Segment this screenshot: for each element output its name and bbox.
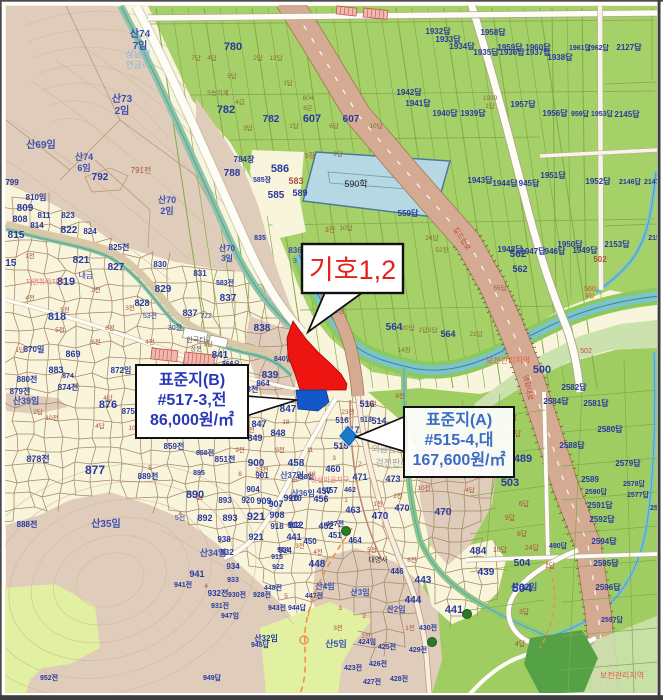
svg-text:4답: 4답 <box>103 394 113 402</box>
svg-text:첫샘마을지구: 첫샘마을지구 <box>311 475 350 484</box>
svg-text:내금: 내금 <box>79 271 94 280</box>
svg-text:1답: 1답 <box>15 346 25 354</box>
svg-text:2전: 2전 <box>91 285 101 294</box>
svg-text:2145답: 2145답 <box>614 109 640 119</box>
svg-text:4급: 4급 <box>235 98 245 106</box>
svg-text:2584답: 2584답 <box>543 396 569 406</box>
svg-text:799: 799 <box>5 178 19 187</box>
svg-text:892: 892 <box>197 513 212 523</box>
svg-text:6전: 6전 <box>407 555 417 564</box>
svg-text:934: 934 <box>226 562 240 571</box>
svg-text:518: 518 <box>360 417 372 424</box>
svg-text:922: 922 <box>272 564 284 571</box>
svg-text:24답: 24답 <box>425 234 438 242</box>
svg-text:연금리: 연금리 <box>126 60 151 70</box>
svg-text:809: 809 <box>17 203 34 214</box>
svg-text:4답: 4답 <box>586 293 595 300</box>
svg-text:945답: 945답 <box>519 178 540 188</box>
svg-text:457: 457 <box>316 486 331 496</box>
svg-text:607: 607 <box>343 114 360 125</box>
svg-text:825전: 825전 <box>109 242 130 252</box>
svg-text:874: 874 <box>62 373 74 380</box>
svg-text:4전: 4전 <box>25 293 35 302</box>
svg-text:448: 448 <box>309 559 326 570</box>
svg-text:893: 893 <box>218 496 232 505</box>
svg-text:446: 446 <box>390 567 404 576</box>
svg-text:9답: 9답 <box>333 150 343 158</box>
svg-text:1943답: 1943답 <box>467 175 493 185</box>
svg-text:2153답: 2153답 <box>604 239 630 249</box>
svg-text:1: 1 <box>388 605 392 612</box>
svg-text:52장: 52장 <box>435 245 448 254</box>
svg-text:815: 815 <box>8 230 25 241</box>
svg-text:930전: 930전 <box>228 590 246 599</box>
svg-text:1답: 1답 <box>203 340 213 348</box>
svg-text:2: 2 <box>362 613 366 620</box>
svg-text:451: 451 <box>328 531 342 540</box>
svg-text:1952답: 1952답 <box>585 176 611 186</box>
svg-text:460: 460 <box>325 464 340 474</box>
svg-text:824: 824 <box>83 227 97 236</box>
svg-text:1949답: 1949답 <box>572 245 598 255</box>
svg-text:441: 441 <box>286 532 301 542</box>
svg-text:2582답: 2582답 <box>561 382 587 392</box>
svg-text:839: 839 <box>262 370 279 381</box>
svg-text:1956답: 1956답 <box>542 108 568 118</box>
svg-text:504: 504 <box>514 558 531 569</box>
svg-text:8전: 8전 <box>395 391 405 400</box>
svg-text:878전: 878전 <box>26 453 49 464</box>
svg-text:851전: 851전 <box>215 454 236 464</box>
svg-text:959답: 959답 <box>571 109 590 118</box>
svg-text:2594답: 2594답 <box>591 536 617 546</box>
svg-text:904: 904 <box>246 485 260 494</box>
svg-text:2592답: 2592답 <box>589 514 615 524</box>
svg-text:기호1,2: 기호1,2 <box>309 255 396 285</box>
svg-text:829: 829 <box>155 284 172 295</box>
svg-text:1953답: 1953답 <box>591 109 614 118</box>
svg-text:918: 918 <box>270 522 284 531</box>
svg-text:443: 443 <box>415 575 432 586</box>
svg-text:502: 502 <box>593 255 607 264</box>
svg-text:산32임: 산32임 <box>254 633 278 643</box>
svg-text:426전: 426전 <box>369 659 387 668</box>
svg-text:7답: 7답 <box>191 54 201 62</box>
svg-text:3전: 3전 <box>295 541 305 550</box>
svg-text:859전: 859전 <box>164 441 185 451</box>
svg-text:1939: 1939 <box>483 95 498 102</box>
svg-text:849: 849 <box>247 433 262 443</box>
svg-text:5: 5 <box>284 593 288 600</box>
svg-text:427전: 427전 <box>363 677 381 686</box>
svg-text:430전: 430전 <box>419 623 437 632</box>
svg-text:888전: 888전 <box>17 519 38 529</box>
svg-text:784장: 784장 <box>234 154 255 164</box>
svg-text:814: 814 <box>30 221 44 230</box>
svg-text:831: 831 <box>193 269 207 278</box>
svg-text:880전: 880전 <box>17 374 38 384</box>
svg-text:9전: 9전 <box>275 445 285 454</box>
svg-text:933: 933 <box>227 577 239 584</box>
svg-text:3전: 3전 <box>325 225 335 234</box>
svg-text:1957답: 1957답 <box>510 99 536 109</box>
svg-text:30장: 30장 <box>168 323 183 332</box>
svg-text:564: 564 <box>386 322 403 333</box>
svg-text:473: 473 <box>385 474 400 484</box>
svg-text:848: 848 <box>270 428 285 438</box>
svg-text:562: 562 <box>510 249 527 260</box>
svg-text:470: 470 <box>394 503 409 513</box>
svg-text:5전: 5전 <box>55 325 65 334</box>
svg-text:53전: 53전 <box>143 311 157 320</box>
svg-text:4답: 4답 <box>515 639 526 648</box>
svg-text:2전: 2전 <box>361 631 371 640</box>
svg-text:3전: 3전 <box>125 303 135 312</box>
svg-text:877: 877 <box>85 463 105 477</box>
svg-text:자연취락지구: 자연취락지구 <box>26 277 65 286</box>
svg-text:대영사: 대영사 <box>368 555 388 564</box>
svg-text:2581답: 2581답 <box>583 398 609 408</box>
svg-text:810임: 810임 <box>26 192 47 202</box>
svg-text:921: 921 <box>248 532 263 542</box>
svg-text:1전: 1전 <box>25 251 35 260</box>
svg-text:590학: 590학 <box>344 179 367 189</box>
svg-text:920: 920 <box>241 496 255 505</box>
svg-text:489: 489 <box>514 453 532 465</box>
svg-text:870일: 870일 <box>24 344 45 354</box>
svg-text:21답: 21답 <box>469 330 482 338</box>
svg-text:823: 823 <box>61 211 75 220</box>
svg-text:4답: 4답 <box>207 54 217 62</box>
svg-text:2임: 2임 <box>160 205 173 216</box>
svg-text:874전: 874전 <box>58 382 79 392</box>
svg-text:470: 470 <box>372 511 389 522</box>
svg-text:산73: 산73 <box>112 92 133 105</box>
svg-text:837: 837 <box>220 293 237 304</box>
svg-text:1: 1 <box>344 497 348 504</box>
svg-text:2전: 2전 <box>393 491 403 500</box>
svg-text:산74: 산74 <box>75 151 93 162</box>
svg-text:3전: 3전 <box>333 623 343 632</box>
svg-text:893: 893 <box>222 513 237 523</box>
svg-text:1942답: 1942답 <box>396 87 422 97</box>
svg-text:23전: 23전 <box>341 407 354 416</box>
svg-text:560: 560 <box>584 286 596 293</box>
svg-text:503: 503 <box>501 477 519 489</box>
svg-text:6전: 6전 <box>105 323 115 332</box>
svg-text:10답: 10답 <box>493 545 508 554</box>
svg-text:상문: 상문 <box>190 345 202 353</box>
svg-text:표준지(A): 표준지(A) <box>426 411 492 429</box>
svg-text:471: 471 <box>352 472 367 482</box>
svg-text:20답: 20답 <box>401 324 414 332</box>
svg-text:1답: 1답 <box>485 102 495 110</box>
svg-text:780: 780 <box>224 41 242 53</box>
svg-text:2146답: 2146답 <box>619 177 642 186</box>
svg-text:490답: 490답 <box>549 541 568 550</box>
svg-text:1답: 1답 <box>545 561 556 570</box>
svg-text:462: 462 <box>344 487 356 494</box>
svg-text:464: 464 <box>348 536 362 545</box>
svg-text:2596답: 2596답 <box>595 582 621 592</box>
svg-text:산39임: 산39임 <box>13 395 40 406</box>
svg-text:835: 835 <box>254 235 266 242</box>
svg-text:86,000원/㎡: 86,000원/㎡ <box>150 410 234 429</box>
svg-text:1전: 1전 <box>373 499 383 508</box>
svg-text:55답: 55답 <box>493 284 506 292</box>
svg-text:2577답: 2577답 <box>627 490 650 499</box>
svg-text:3: 3 <box>332 455 336 462</box>
svg-text:2591답: 2591답 <box>587 500 613 510</box>
svg-text:3답: 3답 <box>243 124 253 132</box>
svg-text:1답: 1답 <box>283 79 293 87</box>
svg-text:5농기계: 5농기계 <box>207 88 229 97</box>
svg-text:2580답: 2580답 <box>597 424 623 434</box>
svg-text:1939답: 1939답 <box>460 108 486 118</box>
svg-text:4답: 4답 <box>465 486 475 494</box>
svg-text:2590답: 2590답 <box>585 487 608 496</box>
svg-text:8은: 8은 <box>303 104 313 112</box>
svg-text:2: 2 <box>358 461 362 468</box>
svg-text:822: 822 <box>61 225 78 236</box>
svg-text:944답: 944답 <box>288 603 307 612</box>
svg-text:821: 821 <box>73 255 90 266</box>
svg-text:895: 895 <box>193 470 205 477</box>
svg-text:23전: 23전 <box>255 465 268 474</box>
svg-text:산5임: 산5임 <box>325 638 347 649</box>
svg-text:2임: 2임 <box>115 104 130 117</box>
svg-text:10답: 10답 <box>369 122 382 130</box>
svg-text:3답: 3답 <box>519 607 530 616</box>
svg-text:4답: 4답 <box>95 422 105 430</box>
svg-text:2답: 2답 <box>253 54 263 62</box>
svg-text:1941답: 1941답 <box>405 98 431 108</box>
svg-text:847: 847 <box>280 404 297 415</box>
svg-text:6: 6 <box>238 471 242 478</box>
svg-text:1940답: 1940답 <box>432 108 458 118</box>
svg-text:산70: 산70 <box>219 243 236 253</box>
svg-text:산70: 산70 <box>158 194 176 205</box>
svg-text:827: 827 <box>108 262 125 273</box>
svg-text:872임: 872임 <box>111 365 132 375</box>
svg-text:1답: 1답 <box>289 122 299 130</box>
svg-text:11: 11 <box>197 495 204 502</box>
svg-text:830: 830 <box>153 260 167 269</box>
svg-text:792: 792 <box>92 172 109 183</box>
svg-text:16: 16 <box>290 477 298 484</box>
svg-text:2588답: 2588답 <box>559 440 585 450</box>
svg-text:931전: 931전 <box>211 601 229 610</box>
svg-text:1959답: 1959답 <box>497 42 523 52</box>
svg-text:811: 811 <box>38 211 51 220</box>
svg-text:607: 607 <box>303 113 321 125</box>
svg-text:3: 3 <box>338 605 342 612</box>
svg-text:423전: 423전 <box>344 663 362 672</box>
svg-text:4: 4 <box>204 583 208 590</box>
svg-text:14장: 14장 <box>397 345 410 354</box>
svg-text:6답: 6답 <box>329 122 339 130</box>
svg-text:2589: 2589 <box>581 475 599 484</box>
svg-text:산69임: 산69임 <box>26 138 56 151</box>
svg-text:5답: 5답 <box>227 72 237 80</box>
svg-text:6답: 6답 <box>519 499 530 508</box>
svg-text:837: 837 <box>182 308 197 318</box>
svg-text:4전: 4전 <box>145 337 155 346</box>
svg-text:1935답: 1935답 <box>473 47 499 57</box>
svg-text:428전: 428전 <box>390 674 408 683</box>
svg-text:10답: 10답 <box>339 224 352 232</box>
svg-text:838: 838 <box>254 323 271 334</box>
svg-text:429전: 429전 <box>409 645 427 654</box>
svg-text:516: 516 <box>335 416 349 425</box>
svg-text:보전관리지역: 보전관리지역 <box>486 355 530 365</box>
svg-text:791전: 791전 <box>131 165 152 175</box>
svg-text:6전: 6전 <box>91 337 101 346</box>
svg-text:910: 910 <box>283 493 298 503</box>
svg-text:559답: 559답 <box>398 208 419 218</box>
svg-text:2127답: 2127답 <box>616 42 642 52</box>
svg-text:912: 912 <box>288 520 303 530</box>
svg-text:상남면: 상남면 <box>126 49 151 59</box>
svg-text:24답: 24답 <box>525 543 540 552</box>
svg-text:500: 500 <box>533 364 551 376</box>
svg-text:167,600원/㎡: 167,600원/㎡ <box>412 450 505 469</box>
svg-text:441: 441 <box>445 604 463 616</box>
svg-text:11: 11 <box>307 447 314 454</box>
svg-text:808: 808 <box>12 214 27 224</box>
svg-text:914: 914 <box>278 546 292 555</box>
svg-text:1답2답: 1답2답 <box>418 326 437 334</box>
svg-text:산3임: 산3임 <box>350 587 369 597</box>
svg-text:938: 938 <box>217 535 231 544</box>
svg-text:952전: 952전 <box>40 673 58 682</box>
svg-text:1962답: 1962답 <box>587 43 610 52</box>
svg-text:932전: 932전 <box>208 588 229 598</box>
svg-text:448전: 448전 <box>264 583 282 592</box>
svg-text:932: 932 <box>220 548 234 557</box>
svg-text:1958답: 1958답 <box>480 27 506 37</box>
svg-text:4: 4 <box>178 511 182 518</box>
svg-text:583: 583 <box>288 176 303 186</box>
svg-text:10전: 10전 <box>417 483 430 492</box>
svg-text:788: 788 <box>224 168 241 179</box>
svg-text:18: 18 <box>308 471 316 478</box>
svg-text:841: 841 <box>212 350 229 361</box>
svg-text:2578답: 2578답 <box>623 479 646 488</box>
svg-text:585장: 585장 <box>253 175 272 184</box>
svg-text:1938답: 1938답 <box>547 52 573 62</box>
svg-text:1전: 1전 <box>405 623 415 632</box>
svg-text:5전: 5전 <box>367 545 377 554</box>
svg-text:5전: 5전 <box>60 305 70 314</box>
svg-text:8답: 8답 <box>517 529 528 538</box>
svg-text:18: 18 <box>282 419 290 426</box>
svg-text:6임: 6임 <box>77 162 90 173</box>
svg-text:1934답: 1934답 <box>449 41 475 51</box>
svg-text:산4임: 산4임 <box>315 581 334 591</box>
svg-text:450: 450 <box>303 537 317 546</box>
svg-text:889전: 889전 <box>138 471 159 481</box>
svg-text:9전: 9전 <box>367 399 377 408</box>
svg-text:604: 604 <box>303 95 314 102</box>
svg-text:5장: 5장 <box>305 151 316 160</box>
svg-text:722: 722 <box>200 313 212 320</box>
svg-text:915: 915 <box>271 554 283 561</box>
svg-text:1960답: 1960답 <box>525 42 551 52</box>
svg-text:439: 439 <box>478 567 495 578</box>
svg-text:484: 484 <box>470 546 487 557</box>
svg-text:437전: 437전 <box>326 519 344 528</box>
svg-text:943전: 943전 <box>268 603 286 612</box>
svg-text:921: 921 <box>247 511 265 523</box>
svg-text:502: 502 <box>580 348 592 355</box>
svg-text:562: 562 <box>512 264 527 274</box>
svg-text:782: 782 <box>217 104 235 116</box>
svg-text:표준지(B): 표준지(B) <box>159 371 225 389</box>
svg-text:425전: 425전 <box>378 642 396 651</box>
svg-text:907: 907 <box>268 499 283 509</box>
svg-text:2579답: 2579답 <box>615 458 641 468</box>
svg-text:470: 470 <box>435 507 452 518</box>
svg-text:504: 504 <box>512 581 532 595</box>
svg-text:12답: 12답 <box>269 54 282 62</box>
svg-text:589: 589 <box>292 188 307 198</box>
svg-text:2595답: 2595답 <box>593 558 619 568</box>
svg-text:5: 5 <box>148 465 152 472</box>
svg-text:941전: 941전 <box>174 580 192 589</box>
svg-text:564: 564 <box>440 329 455 339</box>
svg-text:836: 836 <box>288 246 302 255</box>
svg-text:879전: 879전 <box>10 386 31 396</box>
svg-text:463: 463 <box>345 505 360 515</box>
svg-text:782: 782 <box>263 114 280 125</box>
svg-text:585: 585 <box>268 190 285 201</box>
svg-text:10전: 10전 <box>45 413 58 422</box>
svg-text:산35임: 산35임 <box>91 517 121 530</box>
svg-text:산74: 산74 <box>130 27 151 40</box>
svg-text:583전: 583전 <box>216 278 234 287</box>
svg-text:869: 869 <box>65 349 80 359</box>
svg-text:947임: 947임 <box>221 611 239 620</box>
svg-text:6: 6 <box>314 593 318 600</box>
svg-text:941: 941 <box>189 569 204 579</box>
svg-text:2답: 2답 <box>33 408 43 416</box>
svg-text:#515-4,대: #515-4,대 <box>425 431 494 449</box>
svg-text:9전: 9전 <box>235 445 245 454</box>
svg-text:3일: 3일 <box>221 253 233 263</box>
svg-text:1944답: 1944답 <box>492 178 518 188</box>
svg-text:908: 908 <box>269 510 284 520</box>
svg-text:보전관리지역: 보전관리지역 <box>600 670 644 680</box>
svg-text:949답: 949답 <box>203 673 222 682</box>
svg-text:458: 458 <box>288 458 305 469</box>
svg-text:444: 444 <box>405 595 422 606</box>
svg-text:586: 586 <box>271 163 289 175</box>
svg-text:#517-3,전: #517-3,전 <box>158 391 227 409</box>
svg-text:3: 3 <box>293 258 297 265</box>
svg-text:4전: 4전 <box>313 547 323 556</box>
svg-text:2597답: 2597답 <box>601 615 624 624</box>
svg-text:828: 828 <box>134 298 149 308</box>
svg-text:9답: 9답 <box>505 513 516 522</box>
svg-text:1951답: 1951답 <box>540 170 566 180</box>
svg-text:858전: 858전 <box>196 448 214 457</box>
